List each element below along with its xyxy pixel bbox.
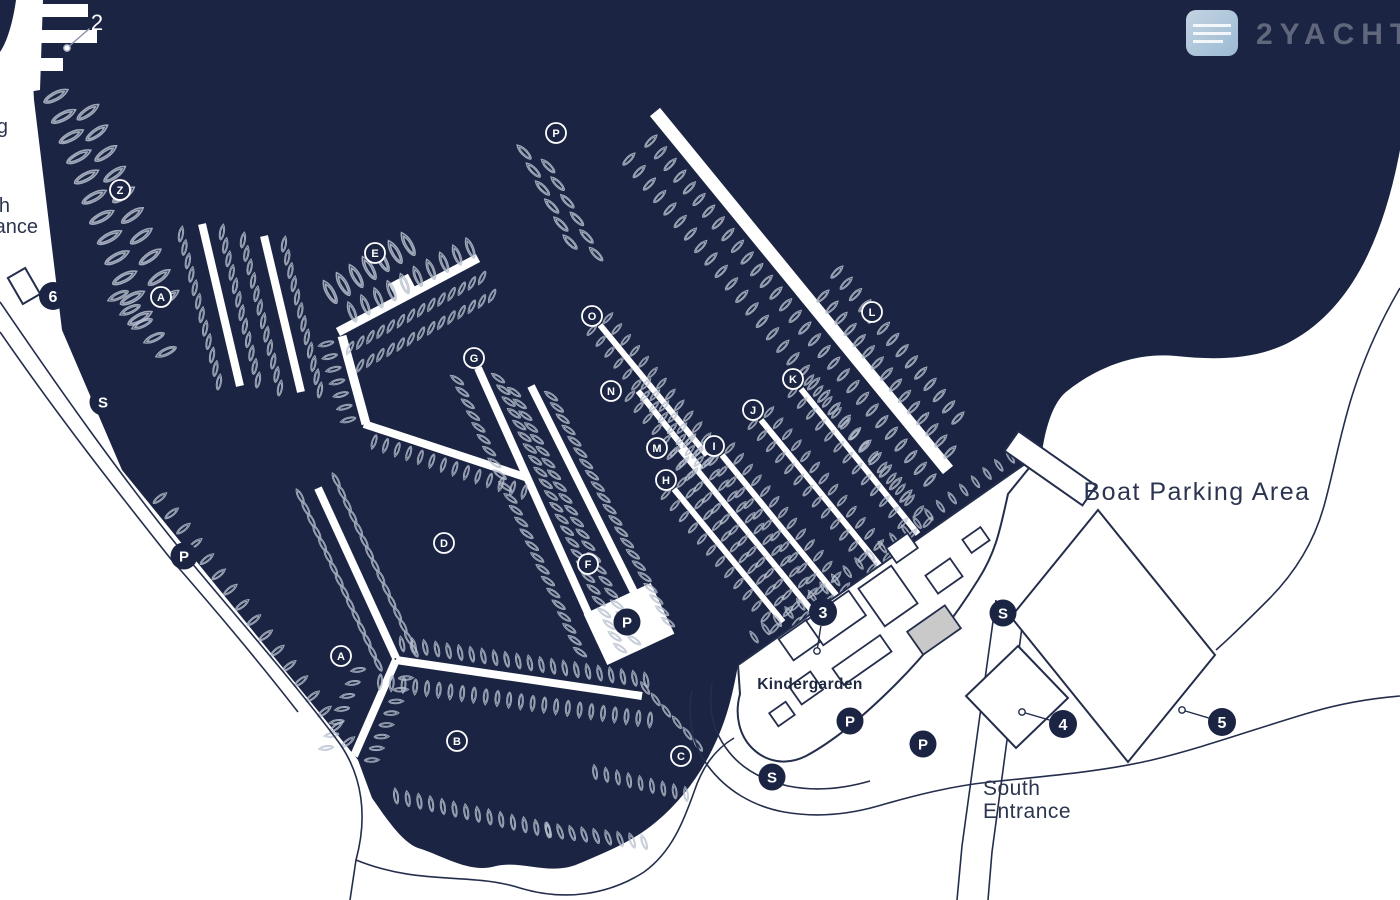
- svg-text:4: 4: [1059, 717, 1068, 734]
- svg-text:2: 2: [91, 10, 103, 35]
- svg-text:3: 3: [819, 605, 828, 622]
- amenity-marker-S-0[interactable]: S: [90, 389, 117, 416]
- svg-text:S: S: [998, 605, 1008, 622]
- label-edge-g: g: [0, 116, 8, 138]
- svg-text:6: 6: [49, 289, 58, 306]
- pier-label-D: D: [434, 533, 454, 553]
- pier-label-C: C: [671, 746, 691, 766]
- pier-label-L: L: [862, 302, 882, 322]
- svg-text:G: G: [470, 353, 479, 365]
- pier-label-I: I: [704, 436, 724, 456]
- svg-text:B: B: [453, 736, 461, 748]
- amenity-marker-S-1[interactable]: S: [759, 764, 786, 791]
- pier-label-A: A: [151, 287, 171, 307]
- svg-text:J: J: [750, 405, 756, 417]
- number-marker-4[interactable]: 4: [1049, 710, 1077, 738]
- pier-label-A: A: [331, 646, 351, 666]
- svg-text:L: L: [869, 307, 876, 319]
- label-edge-th: th: [0, 195, 10, 217]
- svg-text:I: I: [712, 441, 715, 453]
- amenity-marker-P-4[interactable]: P: [614, 609, 641, 636]
- svg-text:P: P: [845, 713, 855, 730]
- pier-label-F: F: [578, 554, 598, 574]
- amenity-marker-P-3[interactable]: P: [171, 543, 198, 570]
- svg-text:M: M: [652, 443, 661, 455]
- pier-label-G: G: [464, 348, 484, 368]
- svg-text:5: 5: [1218, 715, 1227, 732]
- pier-label-N: N: [601, 381, 621, 401]
- pier-label-J: J: [743, 400, 763, 420]
- label-south-entrance-2: Entrance: [983, 800, 1071, 823]
- pier-label-H: H: [656, 470, 676, 490]
- pier-label-B: B: [447, 731, 467, 751]
- pier-label-O: O: [582, 306, 602, 326]
- svg-text:A: A: [157, 292, 165, 304]
- svg-text:K: K: [789, 374, 797, 386]
- leader-dot: [814, 648, 820, 654]
- pier-label-K: K: [783, 369, 803, 389]
- svg-text:S: S: [767, 769, 777, 786]
- amenity-marker-S-2[interactable]: S: [990, 600, 1017, 627]
- marina-map: Boat Parking Area South Entrance Kinderg…: [0, 0, 1400, 900]
- label-boat-parking-area: Boat Parking Area: [1083, 478, 1310, 506]
- leader-dot: [64, 45, 70, 51]
- number-marker-3[interactable]: 3: [809, 598, 837, 626]
- leader-dot: [1179, 707, 1185, 713]
- svg-text:E: E: [371, 248, 378, 260]
- svg-text:A: A: [337, 651, 345, 663]
- watermark-brand: 2YACHTS: [1256, 18, 1400, 51]
- number-marker-5[interactable]: 5: [1208, 708, 1236, 736]
- number-marker-6[interactable]: 6: [39, 282, 67, 310]
- label-edge-ance: ance: [0, 216, 38, 238]
- label-south-entrance-1: South: [983, 777, 1040, 800]
- svg-text:D: D: [440, 538, 448, 550]
- svg-text:P: P: [918, 736, 928, 753]
- pier-label-Z: Z: [110, 180, 130, 200]
- svg-text:O: O: [588, 311, 597, 323]
- svg-text:P: P: [622, 614, 632, 631]
- svg-text:F: F: [585, 559, 592, 571]
- number-marker-2[interactable]: 2: [91, 10, 103, 35]
- svg-text:P: P: [552, 128, 559, 140]
- svg-text:N: N: [607, 386, 615, 398]
- svg-text:H: H: [662, 475, 670, 487]
- amenity-marker-P-5[interactable]: P: [837, 708, 864, 735]
- amenity-marker-P-6[interactable]: P: [910, 731, 937, 758]
- svg-text:C: C: [677, 751, 685, 763]
- pier-label-P: P: [546, 123, 566, 143]
- pier-label-M: M: [647, 438, 667, 458]
- svg-text:Z: Z: [117, 185, 124, 197]
- label-kindergarden: Kindergarden: [757, 676, 863, 693]
- svg-text:P: P: [179, 548, 189, 565]
- pier-label-E: E: [365, 243, 385, 263]
- leader-dot: [1019, 709, 1025, 715]
- svg-text:S: S: [98, 394, 108, 411]
- map-canvas: Boat Parking Area South Entrance Kinderg…: [0, 0, 1400, 900]
